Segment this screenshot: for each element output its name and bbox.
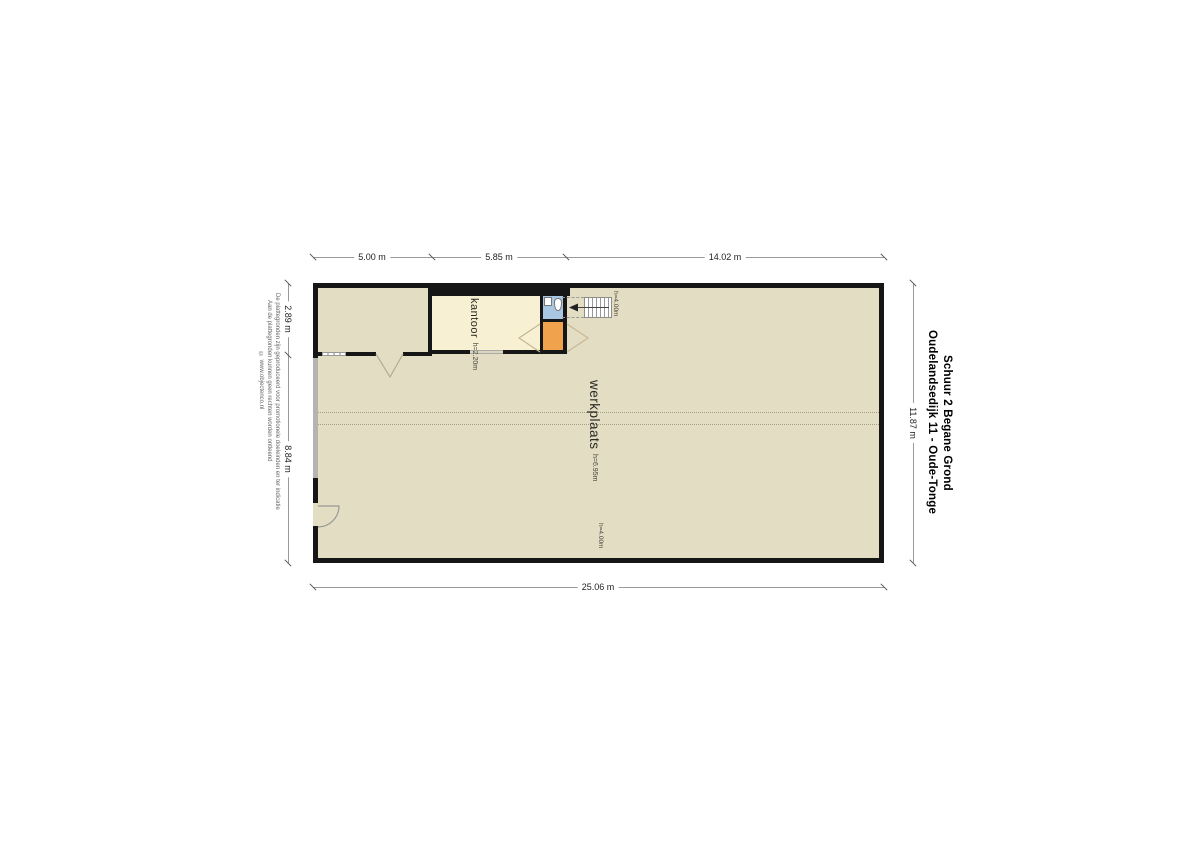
window-interior <box>322 352 346 356</box>
room-label-kantoor: kantoor h=2.20m <box>465 298 483 348</box>
room-kantoor <box>432 296 540 350</box>
floor-plan: kantoor h=2.20m h=4.00m werkplaats h=6.9… <box>313 283 884 563</box>
dim-left-1: 2.89 m <box>283 301 293 337</box>
dim-top-2: 5.85 m <box>481 252 517 262</box>
dim-bottom: 25.06 m <box>578 582 619 592</box>
stairs-approach <box>562 297 584 318</box>
plan-title-line1: Oudelandsedijk 11 - Oude-Tonge <box>924 295 939 550</box>
room-landing <box>543 322 563 350</box>
plan-title: Oudelandsedijk 11 - Oude-Tonge Schuur 2 … <box>924 295 956 550</box>
wall-right <box>879 283 884 563</box>
stairs-height-note: h=4.00m <box>612 285 619 323</box>
wall-left-sliding-door <box>313 358 318 478</box>
plan-title-line2: Schuur 2 Begane Grond <box>939 295 954 550</box>
sink-icon <box>544 297 552 306</box>
wall-left-lower <box>313 526 318 563</box>
wall-top <box>313 283 884 288</box>
floorplan-page: 5.00 m 5.85 m 14.02 m 25.06 m 2.89 m 8.8… <box>0 0 1199 848</box>
kantoor-name: kantoor <box>468 298 480 338</box>
room-label-werkplaats: werkplaats h=6.95m <box>585 380 603 460</box>
wall-left-mid <box>313 478 318 503</box>
wall-band-kantoor <box>428 283 570 296</box>
kantoor-height: h=2.20m <box>471 343 478 370</box>
werkplaats-name: werkplaats <box>587 380 602 450</box>
disclaimer-text: De plattegronden zijn geproduceerd voor … <box>257 293 281 468</box>
door-swing-landing-right <box>567 324 588 352</box>
wall-interior-1 <box>313 352 322 356</box>
werkplaats-height: h=6.95m <box>591 454 598 481</box>
disclaimer-line1: De plattegronden zijn geproduceerd voor … <box>273 293 281 468</box>
dim-right: 11.87 m <box>908 403 918 443</box>
wall-left-upper <box>313 283 318 358</box>
disclaimer-line2: Aan de plattegronden kunnen geen rechten… <box>265 293 273 468</box>
door-swing-interior <box>376 354 403 377</box>
dim-line <box>313 257 884 258</box>
wall-bottom <box>313 558 884 563</box>
staircase <box>584 297 612 318</box>
disclaimer-line3: © www.objectenco.nl <box>257 293 265 468</box>
rear-height-note: h=4.00m <box>597 514 604 558</box>
door-swing-left-wall <box>318 506 339 527</box>
wall-interior-2 <box>346 352 376 356</box>
dim-top-1: 5.00 m <box>354 252 390 262</box>
dim-left-2: 8.84 m <box>283 441 293 477</box>
dim-top-3: 14.02 m <box>705 252 746 262</box>
